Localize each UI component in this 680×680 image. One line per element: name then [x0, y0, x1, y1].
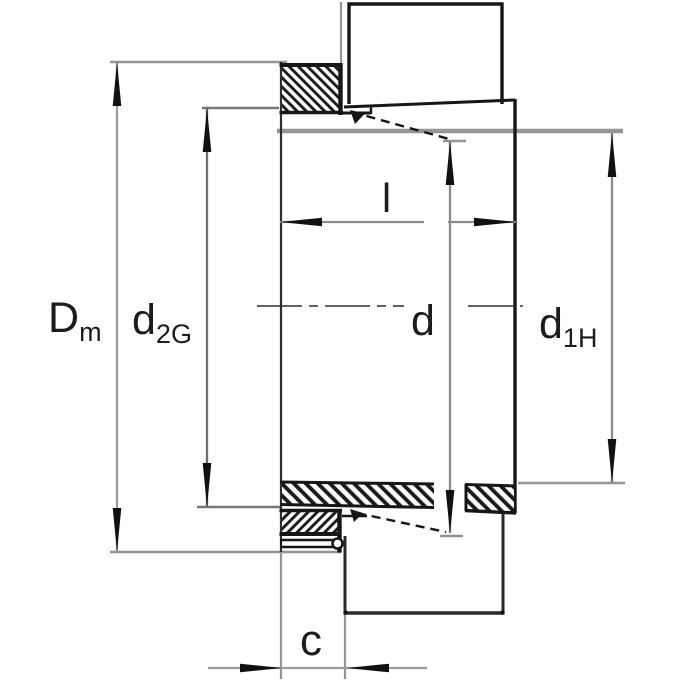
d-arrow-up [446, 141, 455, 185]
washer-tab-circle [333, 539, 343, 549]
label-c: c [300, 616, 322, 665]
band-left-top-edge [280, 482, 434, 484]
dimension-d1h [608, 133, 617, 483]
band-left-hatch [282, 483, 434, 507]
locknut-top-hatch [282, 66, 340, 112]
band-right-hatch [466, 485, 514, 512]
label-d: d [411, 297, 435, 345]
drawing-canvas: Dm d2G l d d1H c [0, 0, 680, 680]
thread-dashed-top [352, 112, 449, 139]
taper-surface-top [344, 100, 515, 107]
d2g-arrow-up [203, 108, 212, 152]
bearing-ring-top-outline [349, 4, 502, 104]
dimension-l [280, 218, 516, 227]
dimension-d [446, 141, 455, 534]
dm-arrow-up [113, 62, 122, 106]
d2g-arrow-down [203, 463, 212, 507]
c-arrow-left [240, 664, 282, 673]
locknut-bottom-hatch [282, 512, 338, 533]
label-d1h: d1H [539, 300, 597, 353]
d-arrow-down [446, 490, 455, 534]
label-dm: Dm [48, 294, 102, 347]
label-l: l [382, 175, 391, 221]
l-arrow-left [280, 218, 322, 227]
l-arrow-right [474, 218, 516, 227]
thread-dashed-bottom [357, 513, 446, 532]
label-d2g: d2G [132, 296, 192, 349]
sleeve-section-band [280, 482, 516, 513]
dimension-dm [113, 62, 122, 552]
locknut-top-section [280, 63, 344, 115]
dm-arrow-down [113, 508, 122, 552]
band-right-top-edge [465, 485, 516, 487]
locknut-bottom-section [280, 509, 343, 553]
ring-corner-right [500, 610, 504, 614]
d1h-arrow-down [608, 439, 617, 483]
dimension-d2g [203, 108, 212, 507]
adapter-sleeve-dimension-drawing: Dm d2G l d d1H c [0, 0, 680, 680]
ring-corner-left [343, 610, 347, 614]
d1h-arrow-up [608, 133, 617, 177]
c-arrow-right [347, 664, 389, 673]
